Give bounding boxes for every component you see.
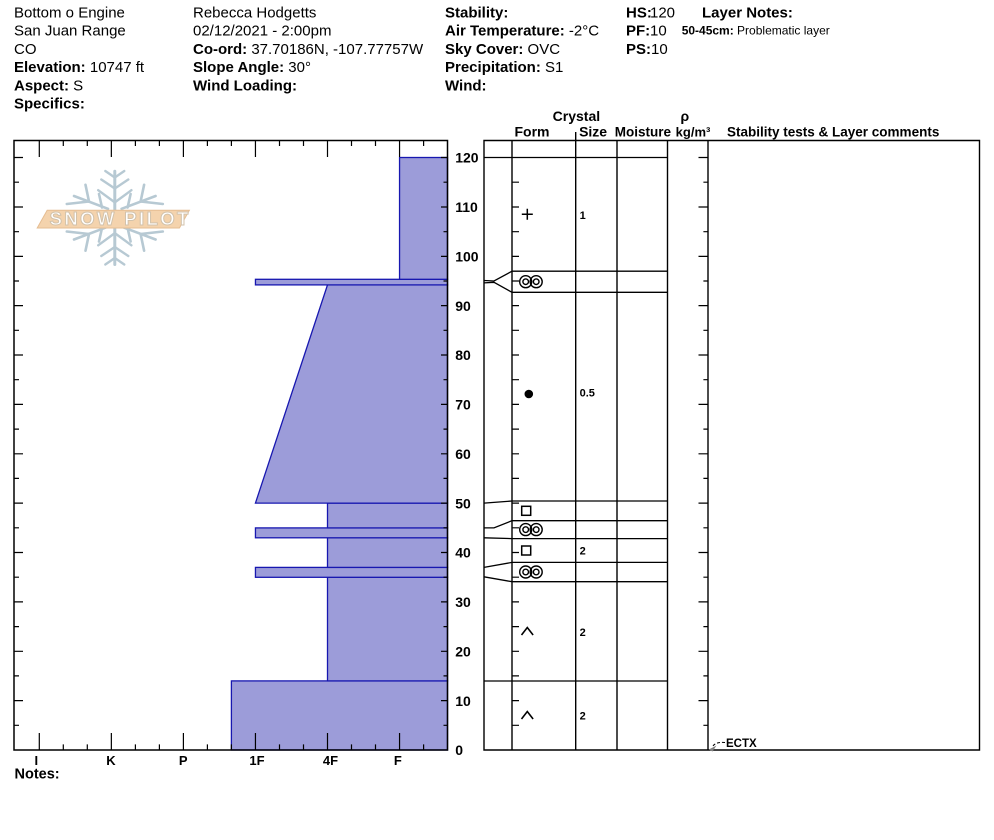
svg-text:100: 100 (455, 249, 479, 265)
svg-text:PF:: PF: (626, 23, 650, 40)
svg-text:1F: 1F (249, 753, 264, 768)
svg-text:Rebecca Hodgetts: Rebecca Hodgetts (193, 5, 316, 22)
svg-text:2: 2 (580, 546, 586, 558)
svg-text:Crystal: Crystal (553, 108, 600, 124)
svg-text:0: 0 (455, 742, 463, 758)
svg-text:90: 90 (455, 298, 471, 314)
svg-text:120: 120 (455, 150, 479, 166)
svg-text:Size: Size (579, 124, 607, 140)
svg-text:10: 10 (651, 41, 668, 58)
svg-text:ρ: ρ (680, 108, 689, 124)
svg-text:40: 40 (455, 545, 471, 561)
svg-text:Stability:: Stability: (445, 5, 508, 22)
svg-text:ECTX: ECTX (726, 738, 757, 750)
svg-text:Sky Cover: OVC: Sky Cover: OVC (445, 41, 560, 58)
svg-text:10: 10 (455, 693, 471, 709)
svg-text:0.5: 0.5 (580, 387, 595, 399)
svg-text:Stability tests & Layer commen: Stability tests & Layer comments (727, 125, 939, 140)
svg-text:50: 50 (455, 495, 471, 511)
svg-text:4F: 4F (323, 753, 338, 768)
svg-text:10: 10 (650, 23, 667, 40)
svg-text:CO: CO (14, 41, 37, 58)
svg-text:30: 30 (455, 594, 471, 610)
svg-text:Wind:: Wind: (445, 77, 487, 94)
svg-text:02/12/2021 - 2:00pm: 02/12/2021 - 2:00pm (193, 23, 331, 40)
svg-text:kg/m³: kg/m³ (676, 125, 711, 140)
svg-text:Aspect: S: Aspect: S (14, 77, 83, 94)
svg-text:120: 120 (650, 5, 675, 22)
svg-text:70: 70 (455, 397, 471, 413)
svg-text:San Juan Range: San Juan Range (14, 23, 126, 40)
svg-text:PS:: PS: (626, 41, 651, 58)
svg-text:Co-ord: 37.70186N, -107.77757W: Co-ord: 37.70186N, -107.77757W (193, 41, 424, 58)
svg-text:Elevation: 10747 ft: Elevation: 10747 ft (14, 59, 145, 76)
svg-text:K: K (106, 753, 116, 768)
svg-text:Moisture: Moisture (615, 125, 672, 140)
svg-text:60: 60 (455, 446, 471, 462)
svg-text:Notes:: Notes: (15, 767, 60, 783)
svg-text:Bottom o Engine: Bottom o Engine (14, 5, 125, 22)
svg-text:Precipitation: S1: Precipitation: S1 (445, 59, 563, 76)
svg-text:1: 1 (580, 210, 586, 222)
svg-text:Layer Notes:: Layer Notes: (702, 5, 793, 22)
svg-text:2: 2 (580, 711, 586, 723)
svg-text:Air Temperature: -2°C: Air Temperature: -2°C (445, 23, 599, 40)
svg-text:Specifics:: Specifics: (14, 96, 85, 113)
svg-text:P: P (179, 753, 188, 768)
svg-text:80: 80 (455, 347, 471, 363)
svg-text:F: F (394, 753, 402, 768)
svg-text:SNOW PILOT: SNOW PILOT (50, 208, 191, 229)
svg-text:Form: Form (515, 124, 550, 140)
svg-text:2: 2 (580, 627, 586, 639)
svg-text:20: 20 (455, 644, 471, 660)
svg-text:Wind Loading:: Wind Loading: (193, 77, 297, 94)
svg-text:HS:: HS: (626, 5, 652, 22)
svg-text:110: 110 (455, 199, 478, 215)
svg-text:50-45cm: Problematic layer: 50-45cm: Problematic layer (682, 23, 830, 37)
svg-text:Slope Angle: 30°: Slope Angle: 30° (193, 59, 311, 76)
